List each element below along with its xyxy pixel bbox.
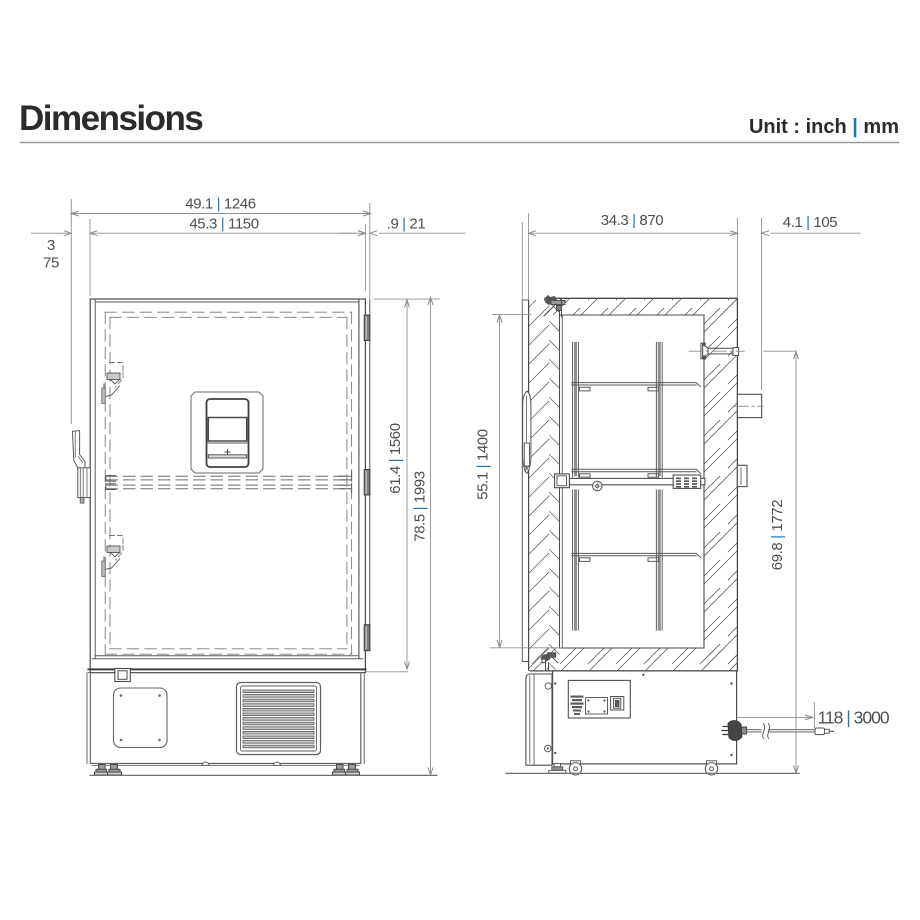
svg-text:61.4 | 1560: 61.4 | 1560 (387, 423, 404, 493)
svg-text:78.5 | 1993: 78.5 | 1993 (412, 471, 429, 541)
svg-text:3: 3 (47, 237, 55, 254)
svg-text:118 | 3000: 118 | 3000 (818, 708, 890, 728)
svg-text:75: 75 (43, 255, 59, 272)
svg-text:34.3 | 870: 34.3 | 870 (601, 212, 664, 229)
svg-text:Dimensions: Dimensions (19, 99, 203, 138)
svg-text:49.1 | 1246: 49.1 | 1246 (185, 196, 255, 213)
svg-text:55.1 | 1400: 55.1 | 1400 (475, 429, 492, 499)
svg-text:.9 | 21: .9 | 21 (387, 216, 426, 233)
svg-text:69.8 | 1772: 69.8 | 1772 (769, 500, 786, 570)
svg-text:45.3 | 1150: 45.3 | 1150 (189, 216, 258, 233)
svg-text:Unit : inch | mm: Unit : inch | mm (749, 116, 899, 138)
svg-text:4.1 | 105: 4.1 | 105 (783, 214, 838, 231)
